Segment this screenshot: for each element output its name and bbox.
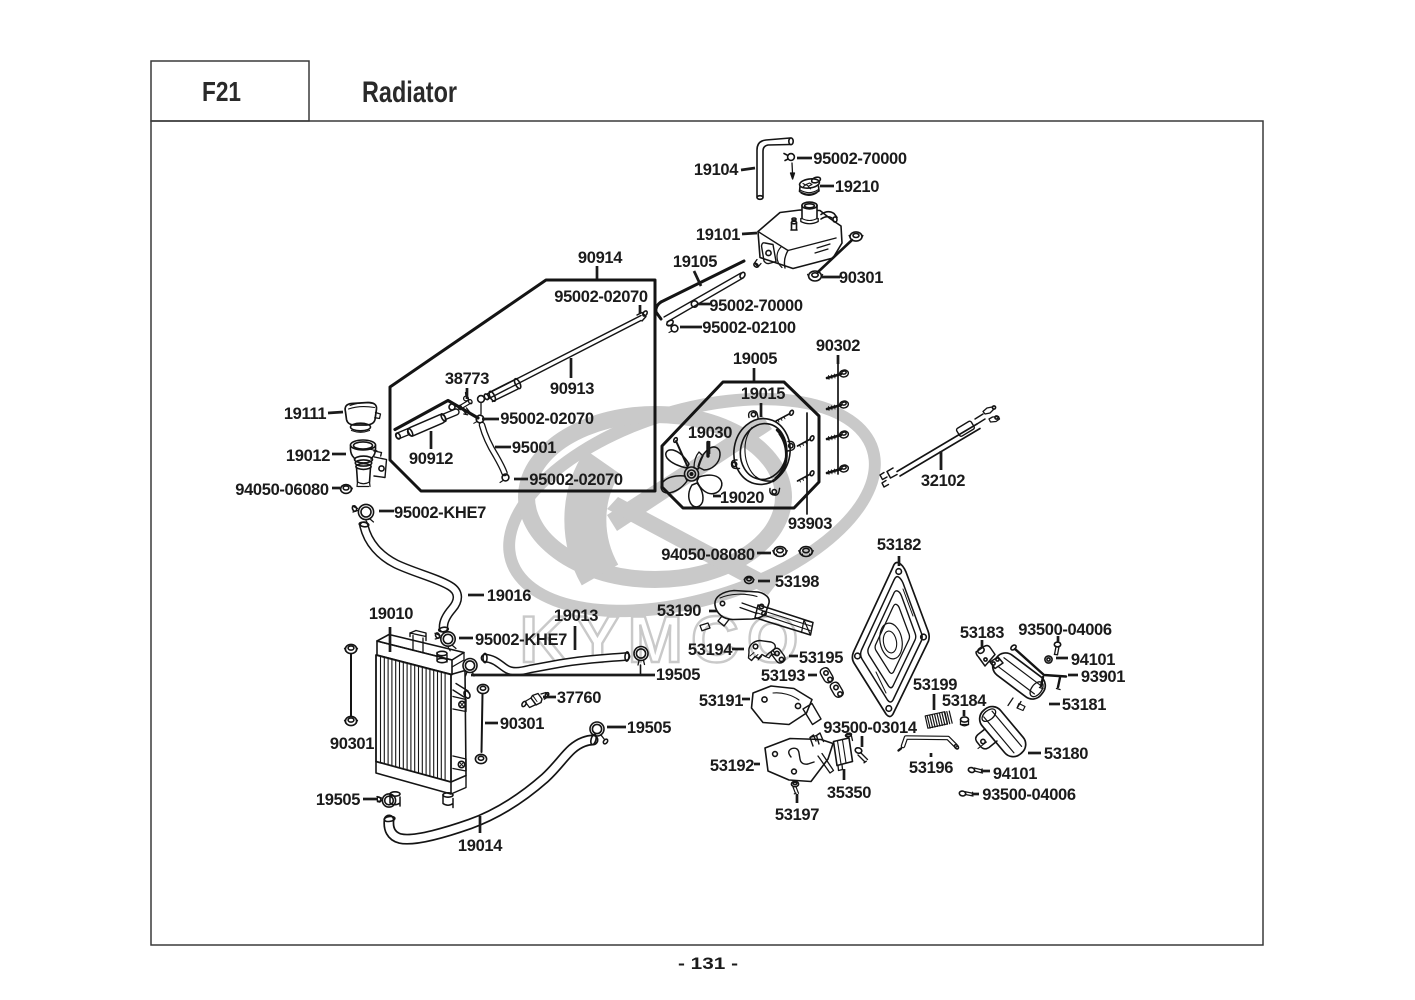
svg-text:53192: 53192 <box>710 757 754 775</box>
svg-text:53195: 53195 <box>799 649 843 667</box>
svg-text:95002-02100: 95002-02100 <box>702 319 796 337</box>
svg-text:53183: 53183 <box>960 624 1004 642</box>
svg-text:19005: 19005 <box>733 350 777 368</box>
svg-text:90914: 90914 <box>578 249 623 267</box>
svg-text:95001: 95001 <box>512 439 556 457</box>
svg-text:19020: 19020 <box>720 489 764 507</box>
svg-text:93500-03014: 93500-03014 <box>823 719 918 737</box>
svg-text:19016: 19016 <box>487 587 531 605</box>
svg-text:53194: 53194 <box>688 641 733 659</box>
svg-text:53180: 53180 <box>1044 745 1088 763</box>
svg-text:Radiator: Radiator <box>362 76 457 109</box>
svg-text:95002-02070: 95002-02070 <box>529 471 623 489</box>
svg-text:53198: 53198 <box>775 573 819 591</box>
svg-text:94050-06080: 94050-06080 <box>235 481 329 499</box>
svg-text:53196: 53196 <box>909 759 953 777</box>
svg-text:90913: 90913 <box>550 380 594 398</box>
svg-text:19013: 19013 <box>554 607 598 625</box>
svg-text:93500-04006: 93500-04006 <box>982 786 1076 804</box>
svg-text:19505: 19505 <box>316 791 360 809</box>
svg-text:95002-02070: 95002-02070 <box>500 410 594 428</box>
svg-text:95002-02070: 95002-02070 <box>554 288 648 306</box>
svg-text:94101: 94101 <box>1071 651 1115 669</box>
svg-text:38773: 38773 <box>445 370 489 388</box>
svg-text:93901: 93901 <box>1081 668 1125 686</box>
svg-text:95002-KHE7: 95002-KHE7 <box>394 504 486 522</box>
svg-text:32102: 32102 <box>921 472 965 490</box>
svg-text:90301: 90301 <box>330 735 374 753</box>
svg-text:95002-KHE7: 95002-KHE7 <box>475 631 567 649</box>
svg-text:19030: 19030 <box>688 424 732 442</box>
svg-text:19015: 19015 <box>741 385 785 403</box>
svg-text:53191: 53191 <box>699 692 743 710</box>
svg-text:95002-70000: 95002-70000 <box>709 297 803 315</box>
svg-text:53197: 53197 <box>775 806 819 824</box>
svg-text:90912: 90912 <box>409 450 453 468</box>
svg-text:95002-70000: 95002-70000 <box>813 150 907 168</box>
svg-text:90301: 90301 <box>839 269 883 287</box>
svg-text:F21: F21 <box>202 76 241 107</box>
svg-text:90301: 90301 <box>500 715 544 733</box>
svg-text:19101: 19101 <box>696 226 740 244</box>
svg-text:90302: 90302 <box>816 337 860 355</box>
svg-text:53182: 53182 <box>877 536 921 554</box>
svg-text:94101: 94101 <box>993 765 1037 783</box>
svg-text:94050-08080: 94050-08080 <box>661 546 755 564</box>
svg-text:19210: 19210 <box>835 178 879 196</box>
svg-text:19105: 19105 <box>673 253 717 271</box>
svg-text:19104: 19104 <box>694 161 739 179</box>
svg-text:53193: 53193 <box>761 667 805 685</box>
svg-text:37760: 37760 <box>557 689 601 707</box>
svg-text:19505: 19505 <box>656 666 700 684</box>
svg-text:- 131 -: - 131 - <box>678 954 738 973</box>
svg-text:93903: 93903 <box>788 515 832 533</box>
svg-text:19010: 19010 <box>369 605 413 623</box>
svg-text:19014: 19014 <box>458 837 503 855</box>
svg-text:19111: 19111 <box>284 405 326 423</box>
svg-text:53190: 53190 <box>657 602 701 620</box>
svg-text:93500-04006: 93500-04006 <box>1018 621 1112 639</box>
svg-text:53181: 53181 <box>1062 696 1106 714</box>
svg-text:35350: 35350 <box>827 784 871 802</box>
svg-text:53184: 53184 <box>942 692 987 710</box>
svg-text:19505: 19505 <box>627 719 671 737</box>
svg-text:19012: 19012 <box>286 447 330 465</box>
